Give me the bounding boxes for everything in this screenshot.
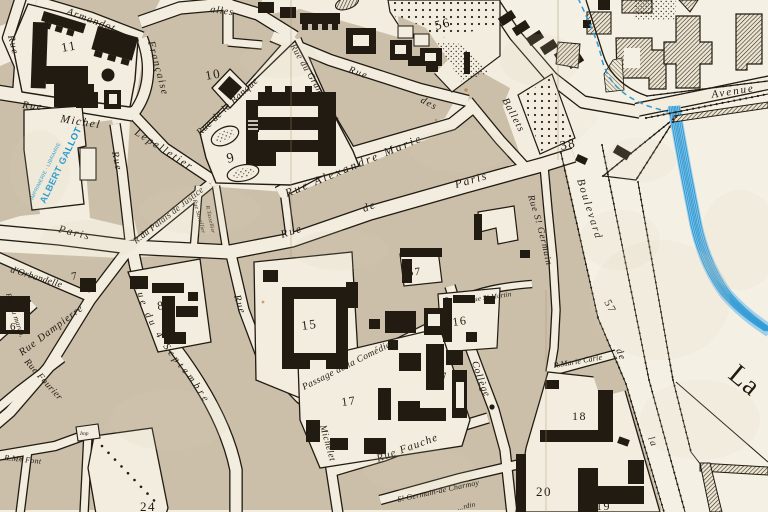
svg-text:Imp: Imp [79, 431, 89, 437]
svg-text:11: 11 [60, 37, 78, 54]
svg-text:67: 67 [407, 266, 422, 279]
svg-text:10: 10 [204, 65, 222, 83]
svg-text:17: 17 [340, 393, 357, 409]
svg-text:24: 24 [140, 499, 156, 512]
svg-text:Rue: Rue [21, 100, 44, 113]
svg-text:16: 16 [451, 313, 468, 329]
svg-text:19: 19 [596, 499, 611, 512]
svg-text:15: 15 [300, 316, 318, 333]
svg-text:17: 17 [432, 369, 449, 385]
svg-text:20: 20 [536, 484, 552, 499]
svg-text:18: 18 [572, 409, 587, 423]
